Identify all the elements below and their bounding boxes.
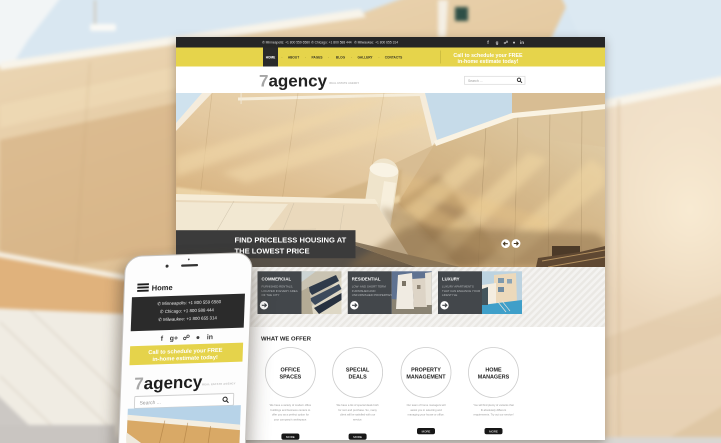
svg-text:OFFICE: OFFICE bbox=[281, 368, 301, 374]
svg-text:managing your house or office.: managing your house or office. bbox=[408, 413, 445, 417]
svg-text:☍: ☍ bbox=[183, 334, 190, 342]
svg-text:Search ...: Search ... bbox=[139, 400, 161, 407]
svg-text:·: · bbox=[378, 55, 379, 59]
svg-text:✆ Minneapolis: +1 800 559 6580: ✆ Minneapolis: +1 800 559 6580 bbox=[262, 41, 310, 45]
svg-text:✆ Chicago: +1 800 588 444: ✆ Chicago: +1 800 588 444 bbox=[311, 41, 352, 45]
svg-text:UNFURNISHED PROPERTIES: UNFURNISHED PROPERTIES bbox=[352, 293, 392, 297]
svg-text:Home: Home bbox=[152, 283, 173, 293]
svg-text:PAGES: PAGES bbox=[312, 56, 323, 60]
svg-text:✆ Milwaukee: +1 800 655 314: ✆ Milwaukee: +1 800 655 314 bbox=[354, 41, 398, 45]
svg-text:g+: g+ bbox=[170, 335, 179, 342]
svg-text:in: in bbox=[207, 334, 213, 341]
svg-text:BLOG: BLOG bbox=[336, 56, 346, 60]
svg-text:requirements. Try out our serv: requirements. Try out our service! bbox=[473, 413, 513, 417]
svg-text:HOME: HOME bbox=[266, 55, 276, 59]
svg-text:SPACES: SPACES bbox=[280, 375, 302, 381]
svg-text:FIND PRICELESS HOUSING AT: FIND PRICELESS HOUSING AT bbox=[235, 236, 347, 245]
svg-text:·: · bbox=[328, 55, 329, 59]
svg-text:☍: ☍ bbox=[504, 40, 509, 45]
svg-text:·: · bbox=[281, 55, 282, 59]
svg-text:f: f bbox=[161, 336, 164, 343]
svg-text:offer you as a perfect option: offer you as a perfect option for bbox=[272, 413, 309, 417]
svg-text:fit absolutely different: fit absolutely different bbox=[481, 408, 507, 412]
svg-text:LUXURY: LUXURY bbox=[442, 277, 460, 282]
svg-text:SPECIAL: SPECIAL bbox=[346, 368, 370, 374]
svg-text:MANAGEMENT: MANAGEMENT bbox=[406, 375, 446, 381]
svg-text:in-home estimate today!: in-home estimate today! bbox=[458, 59, 519, 65]
svg-text:assist you in selecting and: assist you in selecting and bbox=[410, 408, 442, 412]
svg-text:your company's workspace.: your company's workspace. bbox=[274, 417, 307, 421]
svg-text:MORE: MORE bbox=[422, 429, 431, 433]
svg-text:REAL ESTATE AGENCY: REAL ESTATE AGENCY bbox=[330, 82, 360, 85]
svg-text:Our team of home managers will: Our team of home managers will bbox=[407, 403, 446, 407]
svg-text:·: · bbox=[305, 55, 306, 59]
svg-text:in: in bbox=[520, 40, 524, 45]
svg-text:Search ...: Search ... bbox=[468, 79, 483, 83]
svg-text:MORE: MORE bbox=[353, 435, 362, 439]
svg-text:REAL ESTATE AGENCY: REAL ESTATE AGENCY bbox=[202, 382, 236, 386]
svg-text:MORE: MORE bbox=[489, 429, 498, 433]
svg-text:7agency: 7agency bbox=[259, 72, 328, 91]
svg-text:We have a variety of modern of: We have a variety of modern office bbox=[270, 403, 312, 407]
svg-text:You will find plenty of varian: You will find plenty of variants that bbox=[473, 403, 514, 407]
svg-text:Call to schedule your FREE: Call to schedule your FREE bbox=[453, 53, 523, 59]
svg-text:●: ● bbox=[196, 335, 200, 342]
svg-text:OF THE CITY: OF THE CITY bbox=[262, 293, 280, 297]
svg-text:g: g bbox=[496, 40, 499, 45]
svg-text:●: ● bbox=[513, 40, 516, 45]
svg-text:GALLERY: GALLERY bbox=[357, 56, 373, 60]
svg-text:for rent and purchase. So, man: for rent and purchase. So, many bbox=[338, 408, 377, 412]
svg-text:·: · bbox=[351, 55, 352, 59]
svg-text:DEALS: DEALS bbox=[348, 375, 367, 381]
svg-text:We have a list of special deal: We have a list of special deals both bbox=[337, 403, 380, 407]
svg-text:LIFESTYLE: LIFESTYLE bbox=[442, 293, 457, 297]
svg-text:RESIDENTIAL: RESIDENTIAL bbox=[352, 277, 381, 282]
svg-text:service.: service. bbox=[353, 417, 363, 421]
svg-text:PROPERTY: PROPERTY bbox=[411, 368, 441, 374]
svg-text:WHAT WE OFFER: WHAT WE OFFER bbox=[261, 337, 312, 343]
svg-text:MANAGERS: MANAGERS bbox=[478, 375, 510, 381]
svg-text:buildings and business centers: buildings and business centers to bbox=[271, 408, 311, 412]
svg-text:client will be satisfied with: client will be satisfied with our bbox=[340, 413, 375, 417]
svg-text:HOME: HOME bbox=[485, 368, 502, 374]
svg-text:ABOUT: ABOUT bbox=[288, 56, 299, 60]
svg-text:MORE: MORE bbox=[286, 435, 295, 439]
svg-text:CONTACTS: CONTACTS bbox=[385, 56, 402, 60]
svg-text:COMMERCIAL: COMMERCIAL bbox=[262, 277, 292, 282]
svg-text:7agency: 7agency bbox=[134, 372, 203, 393]
